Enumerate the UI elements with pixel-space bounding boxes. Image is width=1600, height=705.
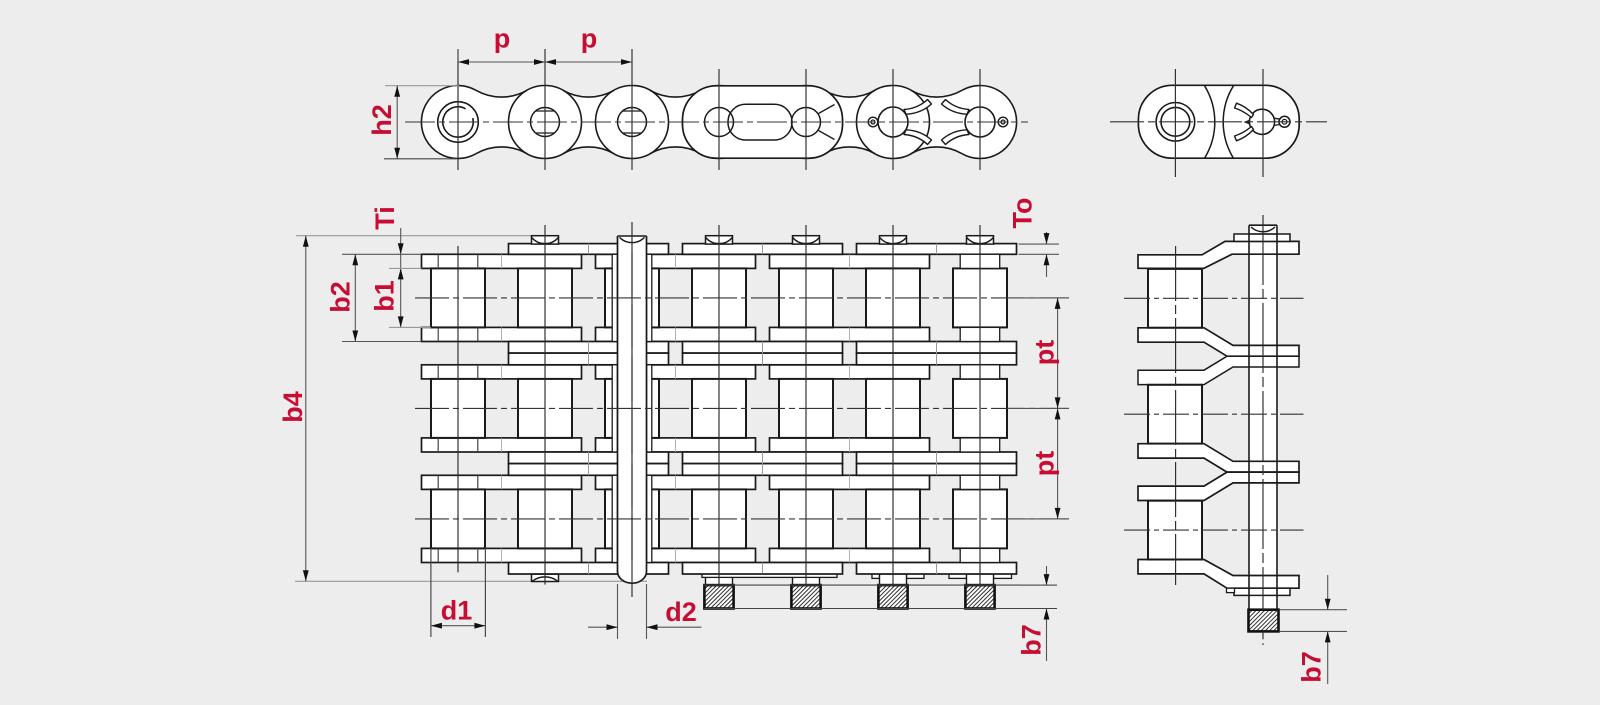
svg-text:h2: h2 <box>367 104 397 136</box>
svg-text:Ti: Ti <box>370 206 400 230</box>
svg-text:b2: b2 <box>326 281 356 313</box>
svg-text:p: p <box>494 24 511 54</box>
svg-text:pt: pt <box>1030 340 1060 365</box>
svg-text:To: To <box>1008 198 1038 229</box>
svg-text:b7: b7 <box>1017 624 1047 656</box>
svg-text:b4: b4 <box>278 391 308 423</box>
svg-text:d1: d1 <box>441 596 473 626</box>
svg-text:pt: pt <box>1030 451 1060 476</box>
svg-text:b1: b1 <box>370 280 400 312</box>
svg-text:b7: b7 <box>1297 651 1327 683</box>
svg-text:p: p <box>581 24 598 54</box>
svg-text:d2: d2 <box>665 597 697 627</box>
